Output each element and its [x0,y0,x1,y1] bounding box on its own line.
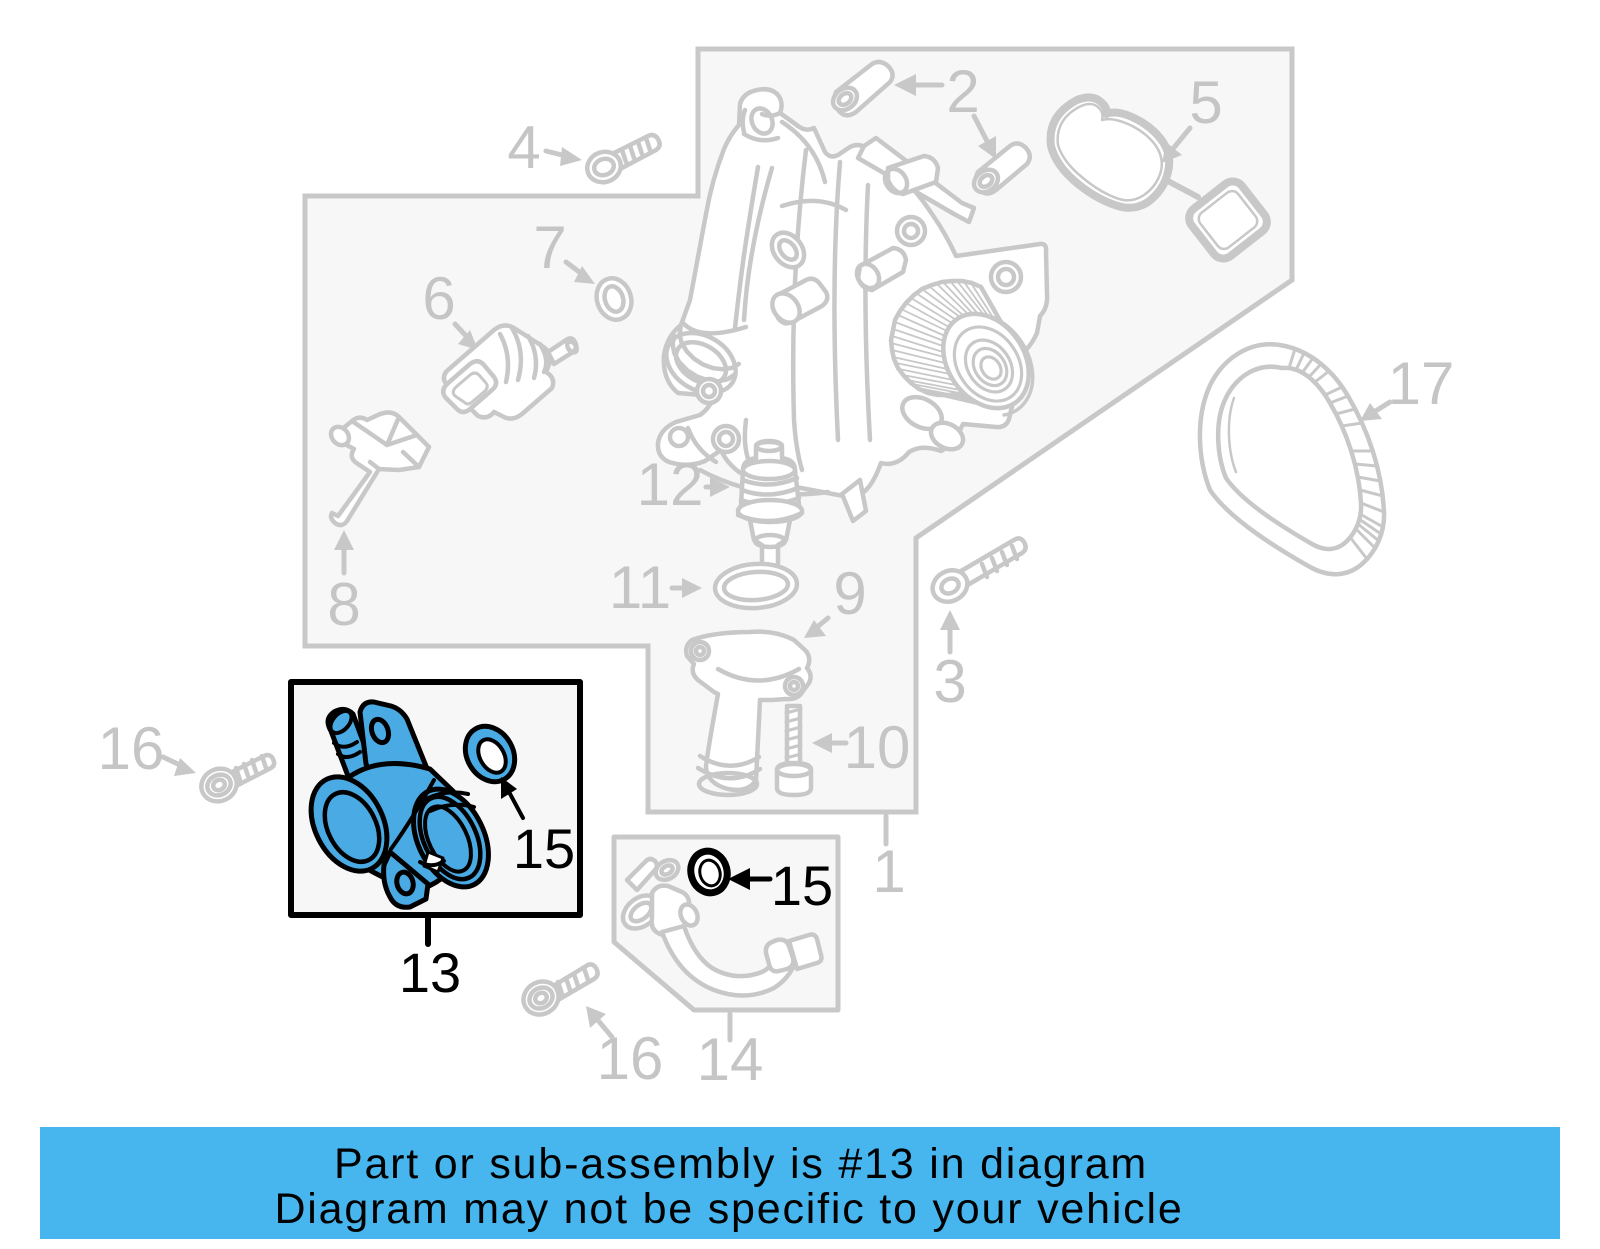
svg-text:Diagram may not be specific to: Diagram may not be specific to your vehi… [274,1185,1183,1233]
svg-text:5: 5 [1189,69,1222,136]
svg-text:8: 8 [327,571,360,638]
svg-text:17: 17 [1388,350,1455,417]
svg-text:Part or sub-assembly is #13 in: Part or sub-assembly is #13 in diagram [334,1140,1148,1188]
svg-text:16: 16 [597,1025,664,1092]
svg-text:7: 7 [533,214,566,281]
svg-text:1: 1 [872,838,905,905]
svg-text:12: 12 [637,451,704,518]
svg-text:15: 15 [771,854,833,917]
svg-text:4: 4 [507,114,540,181]
svg-text:10: 10 [844,714,911,781]
svg-text:16: 16 [98,715,165,782]
svg-text:3: 3 [933,648,966,715]
svg-text:11: 11 [609,554,671,621]
svg-text:9: 9 [833,560,866,627]
svg-text:6: 6 [422,265,455,332]
svg-text:15: 15 [513,817,575,880]
svg-text:13: 13 [399,941,461,1004]
